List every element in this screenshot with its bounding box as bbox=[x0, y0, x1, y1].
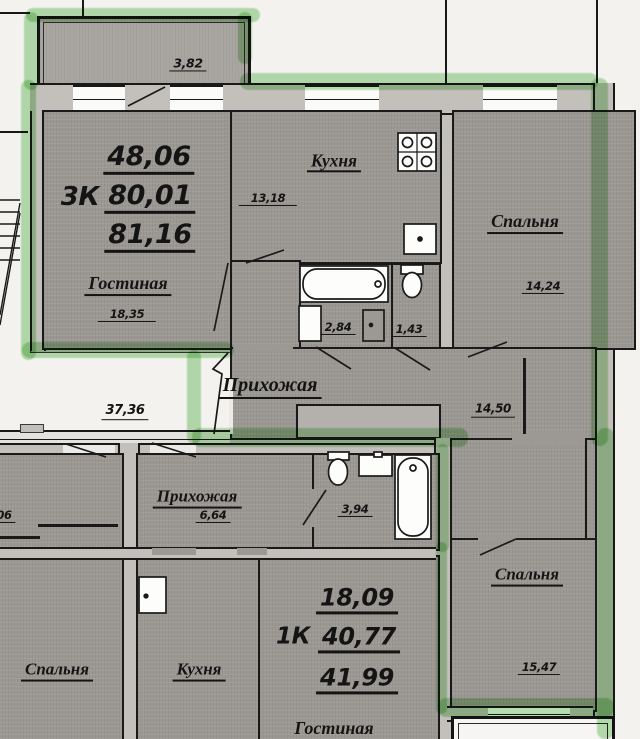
room-label-kitchen-3k: Кухня bbox=[307, 151, 361, 172]
highlighter-stroke bbox=[438, 698, 614, 717]
apt1k-living-area: 18,09 bbox=[316, 585, 398, 614]
highlighter-stroke bbox=[26, 8, 260, 22]
highlighter-stroke bbox=[597, 428, 614, 739]
door-opening bbox=[63, 445, 115, 453]
apt1k-code: 1К bbox=[272, 624, 314, 649]
room-kitchen-adjacent bbox=[136, 555, 262, 739]
apt3k-total-area: 81,16 bbox=[104, 221, 195, 253]
stairs-icon bbox=[0, 200, 20, 325]
room-label-kitchen-adjacent: Кухня bbox=[173, 661, 226, 682]
room-bedroom-adjacent bbox=[0, 557, 124, 739]
opening bbox=[152, 548, 196, 555]
room-bathroom-3k bbox=[297, 263, 394, 350]
highlighter-stroke bbox=[24, 12, 38, 90]
hall-extension-3k bbox=[230, 260, 301, 352]
highlighter-stroke bbox=[22, 342, 234, 358]
room-area-bathroom-1k: 3,94 bbox=[338, 503, 373, 517]
opening bbox=[237, 548, 267, 555]
door-opening bbox=[150, 445, 196, 453]
opening bbox=[233, 344, 293, 351]
room-area-bedroom-top-3k: 14,24 bbox=[522, 280, 564, 294]
balcony-inner-rail bbox=[458, 723, 608, 739]
room-label-hallway-3k: Прихожая bbox=[219, 375, 322, 399]
apt1k-usable-area: 40,77 bbox=[318, 624, 400, 653]
highlighter-stroke bbox=[436, 444, 449, 552]
highlighter-stroke bbox=[591, 78, 608, 446]
room-area-bedroom-bottom-3k: 15,47 bbox=[518, 661, 560, 675]
room-area-kitchen-3k: 13,18 bbox=[239, 192, 297, 206]
wall-edge bbox=[585, 438, 587, 538]
hall-partition bbox=[523, 358, 526, 434]
room-area-living-3k: 18,35 bbox=[98, 308, 156, 322]
opening bbox=[478, 534, 516, 542]
corridor-3k bbox=[447, 438, 597, 544]
stair-landing-area-dim: 37,36 bbox=[101, 404, 148, 420]
apt3k-living-area: 48,06 bbox=[103, 143, 194, 175]
highlighter-stroke bbox=[436, 542, 447, 714]
partial-area-dim: 06 bbox=[0, 509, 16, 523]
room-bathroom-1k bbox=[312, 453, 440, 551]
opening bbox=[310, 489, 315, 527]
room-label-bedroom-top-3k: Спальня bbox=[487, 212, 563, 234]
room-label-living-1k: Гостиная bbox=[290, 719, 377, 739]
balcony-top bbox=[37, 16, 251, 91]
floor-plan-scan: 3,82 48,06 3К 80,01 81,16 Гостиная 18,35… bbox=[0, 0, 640, 739]
highlighter-stroke bbox=[240, 73, 598, 90]
grid-line bbox=[596, 0, 598, 85]
wall-notch bbox=[20, 424, 44, 433]
room-label-hallway-1k: Прихожая bbox=[153, 488, 242, 509]
partition bbox=[0, 536, 40, 539]
window bbox=[73, 85, 125, 113]
room-area-bathroom-3k: 2,84 bbox=[321, 321, 356, 335]
room-label-living-3k: Гостиная bbox=[84, 274, 171, 296]
highlighter-stroke bbox=[21, 80, 36, 360]
balcony-bottom bbox=[451, 716, 615, 739]
partition bbox=[38, 524, 118, 527]
room-label-bedroom-bottom-3k: Спальня bbox=[491, 566, 563, 587]
balcony-inner-rail bbox=[43, 22, 245, 85]
room-area-hallway-1k: 6,64 bbox=[196, 509, 231, 523]
window bbox=[170, 85, 223, 113]
highlighter-stroke bbox=[238, 12, 252, 64]
lower-mid-wall bbox=[0, 547, 436, 560]
balcony-area-dim: 3,82 bbox=[169, 56, 206, 71]
room-area-hallway-3k: 14,50 bbox=[471, 403, 515, 418]
room-kitchen-3k bbox=[230, 110, 442, 264]
apt1k-total-area: 41,99 bbox=[316, 665, 398, 694]
apt3k-usable-area: 80,01 bbox=[104, 182, 195, 214]
room-area-wc-3k: 1,43 bbox=[392, 323, 427, 337]
highlighter-stroke bbox=[192, 428, 468, 447]
room-label-bedroom-adjacent: Спальня bbox=[21, 661, 93, 682]
apt3k-code: 3К bbox=[57, 184, 104, 212]
